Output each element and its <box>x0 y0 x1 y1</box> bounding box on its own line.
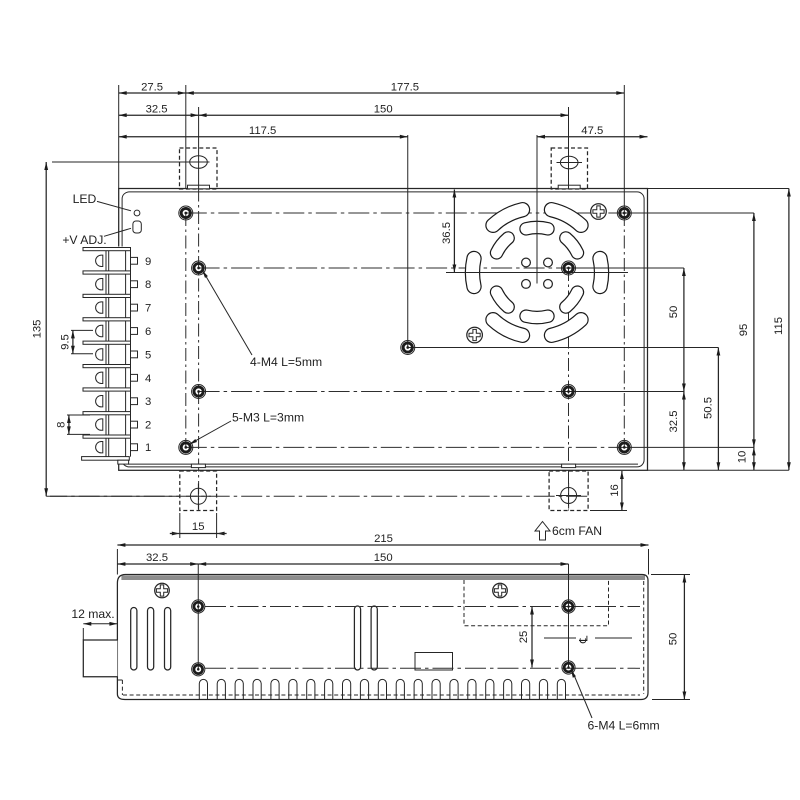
svg-text:8: 8 <box>145 279 151 291</box>
svg-text:9: 9 <box>145 256 151 268</box>
svg-text:36.5: 36.5 <box>441 222 453 244</box>
svg-text:5: 5 <box>145 349 151 361</box>
svg-text:32.5: 32.5 <box>668 411 680 433</box>
svg-text:10: 10 <box>737 451 749 464</box>
svg-text:5-M3 L=3mm: 5-M3 L=3mm <box>232 411 304 425</box>
svg-text:115: 115 <box>773 317 785 335</box>
svg-text:50: 50 <box>668 633 680 646</box>
svg-text:25: 25 <box>518 631 530 644</box>
svg-text:6: 6 <box>145 326 151 338</box>
svg-text:150: 150 <box>374 104 393 116</box>
svg-text:4-M4 L=5mm: 4-M4 L=5mm <box>250 355 322 369</box>
svg-text:177.5: 177.5 <box>391 82 419 94</box>
svg-text:15: 15 <box>192 521 205 533</box>
svg-text:3: 3 <box>145 396 151 408</box>
svg-text:117.5: 117.5 <box>249 125 276 137</box>
svg-text:135: 135 <box>32 320 44 339</box>
svg-text:50: 50 <box>668 306 680 319</box>
svg-text:6cm FAN: 6cm FAN <box>552 524 602 538</box>
svg-text:215: 215 <box>374 533 393 545</box>
svg-text:2: 2 <box>145 420 151 432</box>
svg-text:7: 7 <box>145 303 151 315</box>
svg-text:47.5: 47.5 <box>581 125 603 137</box>
svg-text:32.5: 32.5 <box>146 552 168 564</box>
svg-text:95: 95 <box>738 324 750 337</box>
svg-text:4: 4 <box>145 373 151 385</box>
svg-text:32.5: 32.5 <box>146 104 168 116</box>
svg-text:LED: LED <box>73 192 97 206</box>
svg-text:8: 8 <box>56 422 68 428</box>
svg-text:27.5: 27.5 <box>141 82 163 94</box>
svg-text:150: 150 <box>374 552 393 564</box>
svg-text:9.5: 9.5 <box>60 334 72 350</box>
svg-text:℄: ℄ <box>579 636 591 644</box>
svg-text:1: 1 <box>145 442 151 454</box>
svg-text:50.5: 50.5 <box>703 397 715 419</box>
svg-text:12 max.: 12 max. <box>71 607 114 621</box>
svg-text:16: 16 <box>609 484 621 497</box>
svg-text:6-M4 L=6mm: 6-M4 L=6mm <box>588 719 660 733</box>
svg-text:+V ADJ.: +V ADJ. <box>62 233 106 247</box>
